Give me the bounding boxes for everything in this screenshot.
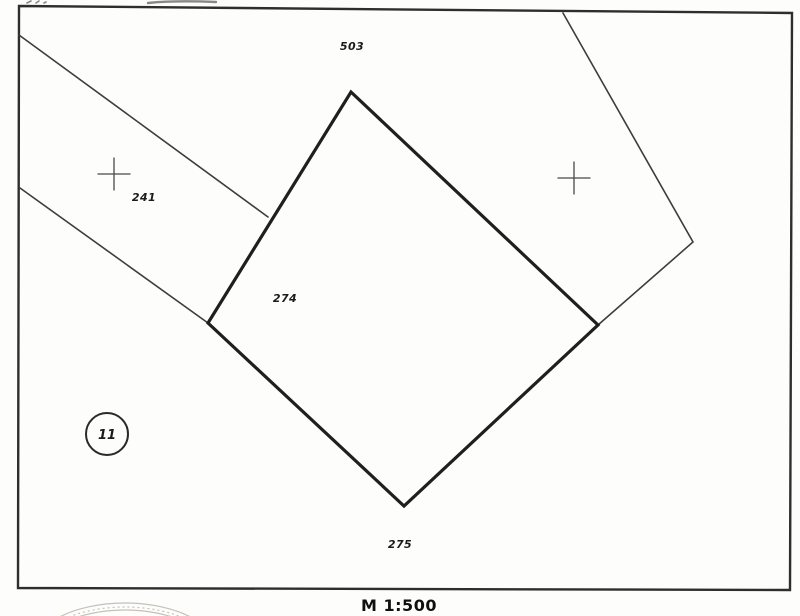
point-marker-number: 11 — [98, 428, 116, 443]
scan-smudge-group — [27, 1, 216, 3]
point-marker-11: 11 — [86, 413, 128, 455]
parcel-label-274: 274 — [273, 292, 297, 305]
boundary-line-west — [20, 188, 208, 323]
scan-smudge — [148, 1, 216, 3]
boundary-line-east — [563, 13, 693, 325]
map-frame-border — [18, 6, 792, 590]
grid-crosshair-right-icon — [558, 162, 590, 194]
seal-stamp-partial — [28, 603, 222, 616]
cadastral-plan: 503 241 274 275 11 M 1:500 — [0, 0, 800, 616]
boundary-line-northwest — [19, 35, 268, 217]
scan-smudge — [27, 1, 46, 3]
parcel-label-503: 503 — [340, 40, 364, 53]
grid-crosshair-left-icon — [98, 158, 130, 190]
scale-label: M 1:500 — [361, 596, 437, 615]
parcel-274-boundary — [208, 92, 598, 506]
parcel-label-275: 275 — [388, 538, 412, 551]
parcel-label-241: 241 — [132, 191, 156, 204]
plan-drawing: 503 241 274 275 11 M 1:500 — [0, 0, 800, 616]
seal-hatching — [32, 607, 218, 616]
